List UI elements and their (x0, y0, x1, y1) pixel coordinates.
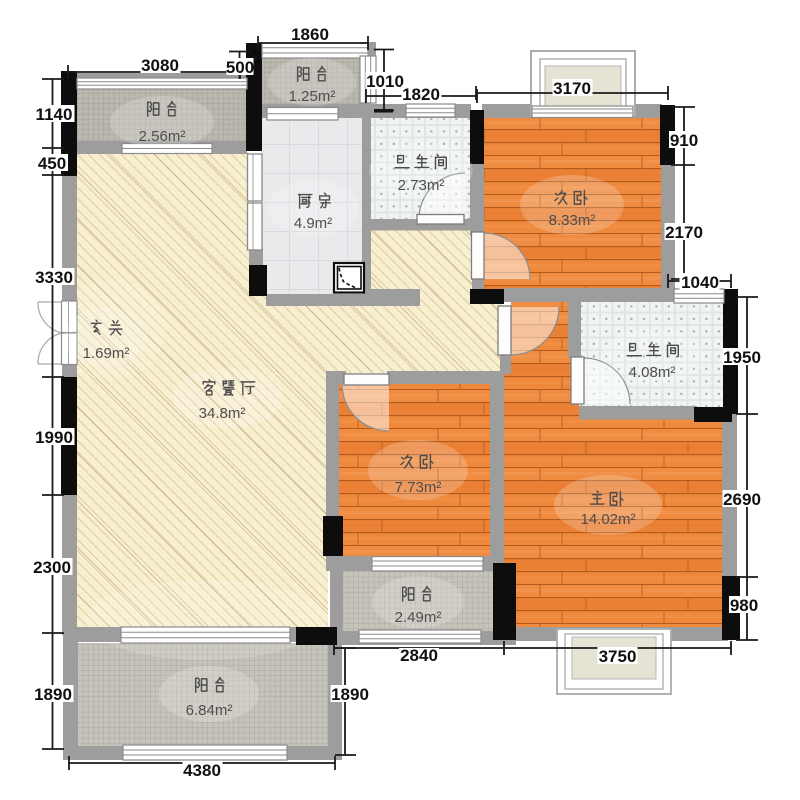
svg-text:1890: 1890 (331, 685, 369, 704)
svg-text:1010: 1010 (366, 72, 404, 91)
svg-text:3330: 3330 (35, 268, 73, 287)
svg-text:980: 980 (730, 596, 758, 615)
svg-text:6.84m²: 6.84m² (186, 702, 233, 719)
svg-text:2.56m²: 2.56m² (139, 128, 186, 145)
svg-text:1.25m²: 1.25m² (289, 88, 336, 105)
svg-text:1040: 1040 (681, 273, 719, 292)
svg-text:1990: 1990 (35, 428, 73, 447)
svg-text:4.9m²: 4.9m² (294, 215, 332, 232)
svg-text:1820: 1820 (402, 85, 440, 104)
svg-text:2690: 2690 (723, 490, 761, 509)
svg-text:2170: 2170 (665, 223, 703, 242)
svg-text:14.02m²: 14.02m² (580, 511, 635, 528)
svg-text:3750: 3750 (599, 647, 637, 666)
svg-text:2.73m²: 2.73m² (398, 177, 445, 194)
svg-text:1950: 1950 (723, 348, 761, 367)
svg-text:4380: 4380 (183, 761, 221, 780)
svg-text:450: 450 (38, 154, 66, 173)
svg-text:3170: 3170 (553, 79, 591, 98)
svg-text:500: 500 (226, 58, 254, 77)
svg-text:3080: 3080 (141, 56, 179, 75)
svg-text:2840: 2840 (400, 646, 438, 665)
svg-text:1860: 1860 (291, 25, 329, 44)
svg-text:7.73m²: 7.73m² (395, 479, 442, 496)
svg-text:4.08m²: 4.08m² (629, 364, 676, 381)
svg-text:2.49m²: 2.49m² (395, 609, 442, 626)
svg-text:910: 910 (670, 131, 698, 150)
svg-text:1.69m²: 1.69m² (83, 345, 130, 362)
svg-text:1140: 1140 (36, 105, 73, 124)
svg-text:34.8m²: 34.8m² (199, 405, 246, 422)
svg-text:8.33m²: 8.33m² (549, 212, 596, 229)
svg-text:1890: 1890 (34, 685, 72, 704)
svg-text:2300: 2300 (33, 558, 71, 577)
